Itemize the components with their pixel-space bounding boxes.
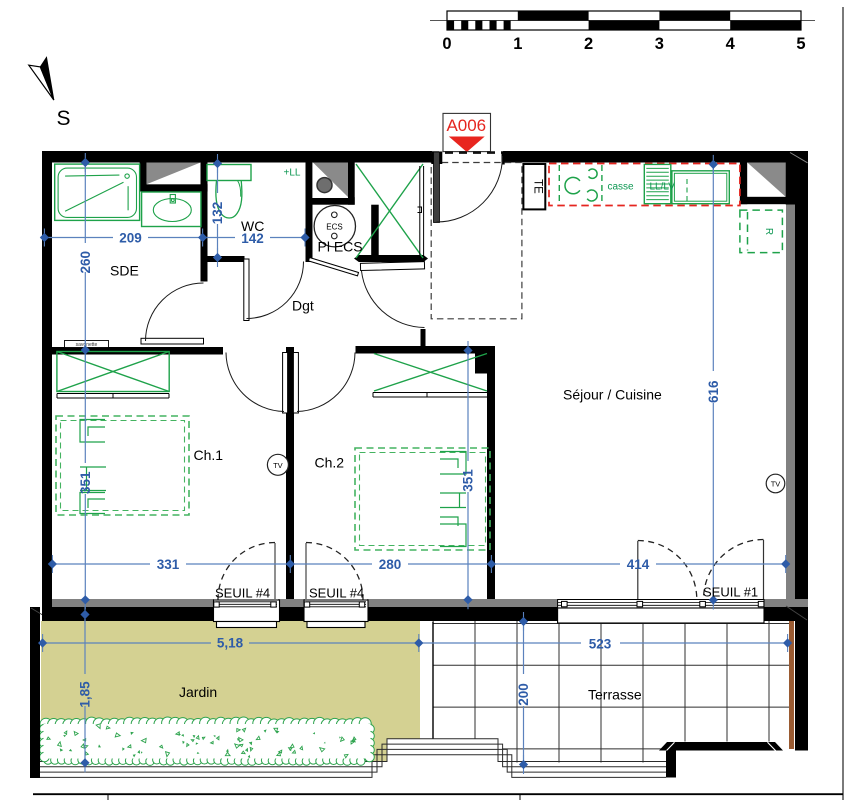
svg-text:414: 414: [627, 557, 650, 572]
svg-text:Ch.1: Ch.1: [194, 447, 224, 463]
svg-text:TV: TV: [273, 461, 283, 470]
svg-text:616: 616: [706, 380, 721, 403]
svg-text:+LL: +LL: [284, 168, 301, 179]
svg-text:SDE: SDE: [110, 263, 139, 279]
svg-text:TV: TV: [771, 480, 781, 489]
svg-text:Séjour / Cuisine: Séjour / Cuisine: [563, 387, 662, 403]
svg-text:351: 351: [461, 469, 476, 492]
svg-text:523: 523: [589, 637, 612, 652]
svg-text:S: S: [57, 107, 71, 130]
svg-text:R: R: [763, 228, 774, 235]
svg-text:1: 1: [513, 35, 522, 53]
svg-text:A006: A006: [446, 116, 486, 135]
svg-text:SEUIL #4: SEUIL #4: [215, 586, 270, 601]
svg-text:ECS: ECS: [326, 223, 342, 232]
svg-text:TE: TE: [532, 179, 544, 194]
svg-text:casse: casse: [608, 182, 635, 193]
svg-text:3: 3: [655, 35, 664, 53]
svg-text:0: 0: [442, 35, 451, 53]
svg-text:LL/LV: LL/LV: [650, 182, 676, 193]
svg-text:Pl ECS: Pl ECS: [318, 239, 363, 255]
svg-text:5,18: 5,18: [217, 636, 244, 651]
svg-text:Terrasse: Terrasse: [588, 687, 642, 703]
svg-text:351: 351: [78, 471, 93, 494]
svg-text:Ch.2: Ch.2: [315, 455, 345, 471]
svg-text:2: 2: [584, 35, 593, 53]
svg-text:260: 260: [78, 251, 93, 274]
svg-text:SEUIL #4: SEUIL #4: [309, 586, 364, 601]
svg-text:5: 5: [796, 35, 805, 53]
svg-text:132: 132: [210, 202, 225, 225]
svg-text:280: 280: [379, 557, 402, 572]
svg-text:1,85: 1,85: [78, 681, 93, 708]
svg-text:209: 209: [119, 231, 142, 246]
svg-text:Jardin: Jardin: [179, 684, 217, 700]
svg-text:WC: WC: [241, 218, 264, 234]
svg-text:Dgt: Dgt: [292, 298, 314, 314]
svg-text:331: 331: [157, 557, 180, 572]
svg-text:4: 4: [726, 35, 736, 53]
svg-text:200: 200: [516, 683, 531, 706]
svg-text:SEUIL #1: SEUIL #1: [703, 585, 758, 600]
